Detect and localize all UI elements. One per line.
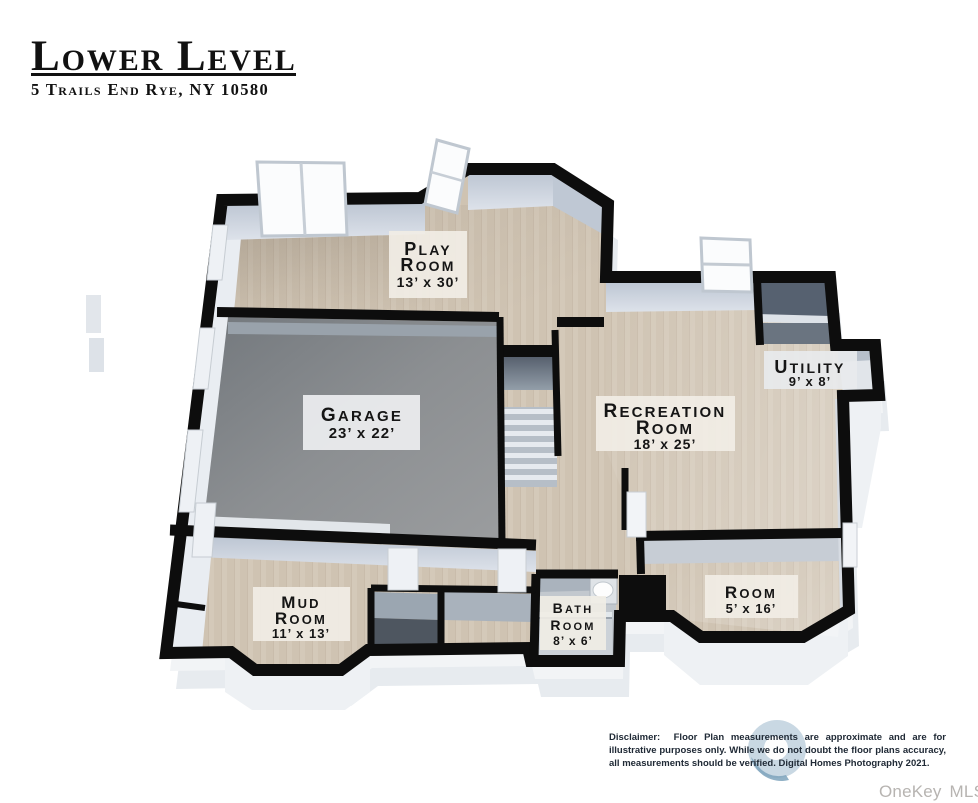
- svg-text:9’ x 8’: 9’ x 8’: [789, 374, 831, 389]
- svg-text:23’ x 22’: 23’ x 22’: [329, 425, 396, 442]
- svg-text:18’ x 25’: 18’ x 25’: [634, 436, 697, 452]
- svg-text:13’ x 30’: 13’ x 30’: [397, 274, 460, 290]
- svg-text:ROOM: ROOM: [725, 583, 777, 602]
- svg-text:11’ x 13’: 11’ x 13’: [272, 626, 330, 641]
- svg-text:ROOM: ROOM: [400, 255, 455, 275]
- svg-text:5’ x 16’: 5’ x 16’: [726, 601, 777, 616]
- svg-text:8’ x 6’: 8’ x 6’: [553, 634, 593, 648]
- svg-text:GARAGE: GARAGE: [321, 405, 403, 426]
- svg-text:RECREATION: RECREATION: [604, 401, 727, 422]
